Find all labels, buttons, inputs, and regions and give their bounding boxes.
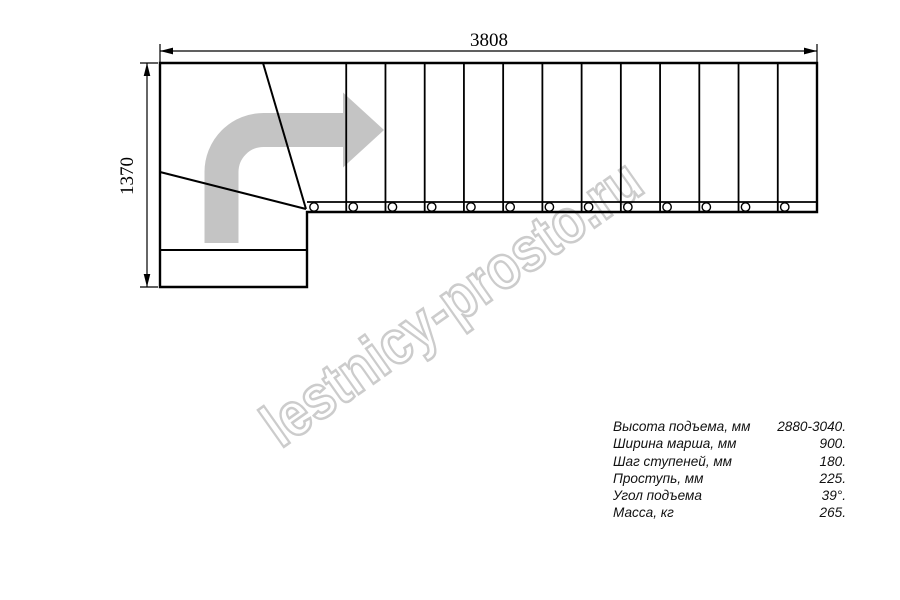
dimension-width-arrow-left	[160, 48, 173, 55]
spec-row: Масса, кг 265.	[613, 504, 846, 521]
stringer-bolt-circle	[388, 203, 396, 211]
spec-value: 2880-3040.	[777, 418, 846, 435]
spec-value: 265.	[820, 504, 846, 521]
spec-label: Ширина марша, мм	[613, 435, 737, 452]
spec-row: Шаг ступеней, мм 180.	[613, 453, 846, 470]
spec-value: 39°.	[822, 487, 846, 504]
dimension-width-arrow-right	[804, 48, 817, 55]
watermark-text: lestnicy-prosto.ru	[249, 146, 655, 461]
spec-label: Высота подъема, мм	[613, 418, 750, 435]
spec-row: Высота подъема, мм 2880-3040.	[613, 418, 846, 435]
direction-arrow-icon	[222, 93, 385, 244]
spec-label: Угол подъема	[613, 487, 702, 504]
stringer-bolt-circle	[427, 203, 435, 211]
direction-arrow-shaft	[222, 130, 344, 243]
spec-label: Проступь, мм	[613, 470, 703, 487]
stringer-bolt-circles	[310, 203, 789, 211]
direction-arrow-head	[343, 93, 384, 168]
stringer-bolt-circle	[624, 203, 632, 211]
spec-value: 180.	[820, 453, 846, 470]
stringer-bolt-circle	[310, 203, 318, 211]
spec-label: Шаг ступеней, мм	[613, 453, 732, 470]
spec-row: Проступь, мм 225.	[613, 470, 846, 487]
stringer-bolt-circle	[545, 203, 553, 211]
spec-label: Масса, кг	[613, 504, 674, 521]
stringer-bolt-circle	[584, 203, 592, 211]
stringer-bolt-circle	[741, 203, 749, 211]
spec-value: 225.	[820, 470, 846, 487]
stringer-bolt-circle	[781, 203, 789, 211]
dimension-height-label: 1370	[117, 157, 138, 195]
dimension-width-label: 3808	[470, 30, 508, 51]
watermark: lestnicy-prosto.ru	[249, 146, 655, 461]
stringer-bolt-circle	[349, 203, 357, 211]
stringer-bolt-circle	[663, 203, 671, 211]
stringer-bolt-circle	[506, 203, 514, 211]
dimension-height-arrow-top	[144, 63, 151, 76]
specs-table: Высота подъема, мм 2880-3040. Ширина мар…	[613, 418, 846, 522]
spec-row: Угол подъема 39°.	[613, 487, 846, 504]
dimension-height-arrow-bottom	[144, 274, 151, 287]
dimension-height	[140, 63, 158, 287]
stair-plan-page: lestnicy-prosto.ru 3808	[0, 0, 900, 600]
stringer-bolt-circle	[467, 203, 475, 211]
spec-value: 900.	[820, 435, 846, 452]
stringer-bolt-circle	[702, 203, 710, 211]
spec-row: Ширина марша, мм 900.	[613, 435, 846, 452]
